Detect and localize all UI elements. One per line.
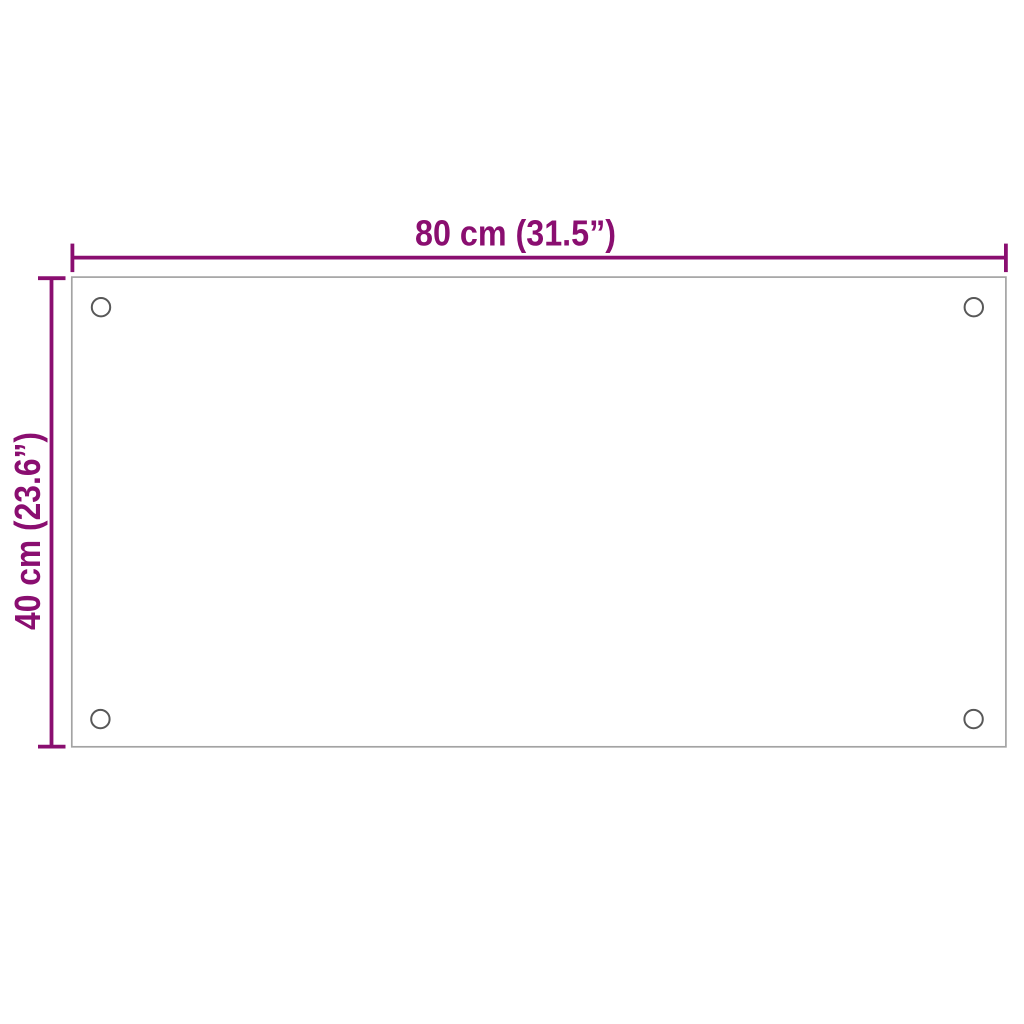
svg-text:40 cm (23.6”): 40 cm (23.6”) (7, 432, 48, 630)
svg-text:80 cm (31.5”): 80 cm (31.5”) (415, 213, 616, 254)
